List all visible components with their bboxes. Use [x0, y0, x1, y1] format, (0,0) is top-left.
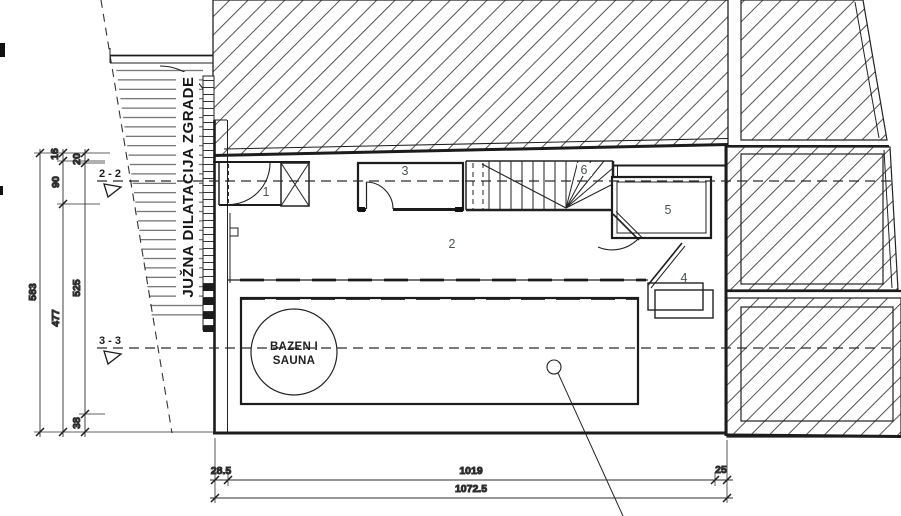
hatch-block-bottom-right	[727, 298, 901, 437]
exterior-wall-rungs	[203, 76, 214, 330]
room4-step-1	[648, 283, 703, 310]
room2-pilaster	[230, 228, 238, 236]
room-label-5: 5	[665, 203, 672, 217]
room-label-1: 1	[263, 185, 270, 199]
section-label-2-2: 2 - 2	[99, 168, 121, 180]
dim-525: 525	[71, 279, 83, 297]
section-label-3-3: 3 - 3	[99, 335, 121, 347]
dim-28-5: 28.5	[211, 465, 232, 477]
rooms-top-row	[213, 162, 463, 212]
room-label-3: 3	[402, 164, 409, 178]
leader-line	[558, 373, 623, 516]
room-label-2: 2	[449, 237, 456, 251]
room3-poche-left	[358, 207, 365, 212]
edge-mark-2	[0, 186, 3, 195]
leader-circle	[547, 360, 561, 374]
dim-25: 25	[715, 464, 727, 476]
section-arrow-3-3	[104, 351, 121, 364]
room3-walls	[358, 163, 463, 211]
pool-hall: BAZEN I SAUNA	[228, 213, 648, 516]
embankment-strip: JUŽNA DILATACIJA ZGRADE	[0, 0, 214, 433]
stairs-walk-line	[482, 164, 566, 208]
pool-label-line1: BAZEN I	[270, 341, 318, 353]
dim-20: 20	[71, 153, 83, 165]
rooms-right	[598, 177, 713, 318]
dim-90: 90	[50, 176, 62, 188]
wall-poche-4	[203, 326, 214, 332]
hatch-block-top-right	[741, 0, 887, 140]
dim-38: 38	[71, 417, 83, 429]
dim-583: 583	[27, 283, 39, 301]
room-label-6: 6	[581, 163, 588, 177]
bottom-right-thick-edge	[727, 435, 901, 437]
dim-16: 16	[49, 148, 61, 160]
floor-plan-drawing: JUŽNA DILATACIJA ZGRADE	[0, 0, 901, 516]
staircase	[466, 161, 618, 213]
pool-label-line2: SAUNA	[273, 355, 315, 367]
room4-diagonal-wall-a	[648, 243, 682, 285]
wall-poche-3	[203, 312, 214, 319]
site-label: JUŽNA DILATACIJA ZGRADE	[179, 76, 197, 297]
dim-1019: 1019	[459, 465, 483, 477]
room-label-4: 4	[681, 271, 688, 285]
room4-step-2	[655, 290, 713, 318]
room3-poche-right	[455, 207, 463, 212]
bottom-dimensions: 28.5 1019 25 1072.5	[210, 438, 733, 503]
hatch-block-right-middle	[727, 147, 898, 290]
wall-poche-1	[203, 284, 214, 291]
hatch-block-top	[213, 0, 728, 156]
dim-477: 477	[50, 309, 62, 327]
wall-poche-2	[203, 298, 214, 305]
dim-1072-5: 1072.5	[455, 483, 487, 495]
room3-door-arc	[367, 182, 394, 209]
room5-door-arc	[598, 239, 638, 250]
floor-plan-canvas: JUŽNA DILATACIJA ZGRADE	[0, 0, 901, 516]
section-arrow-2-2	[104, 184, 121, 197]
edge-mark-1	[0, 43, 5, 57]
